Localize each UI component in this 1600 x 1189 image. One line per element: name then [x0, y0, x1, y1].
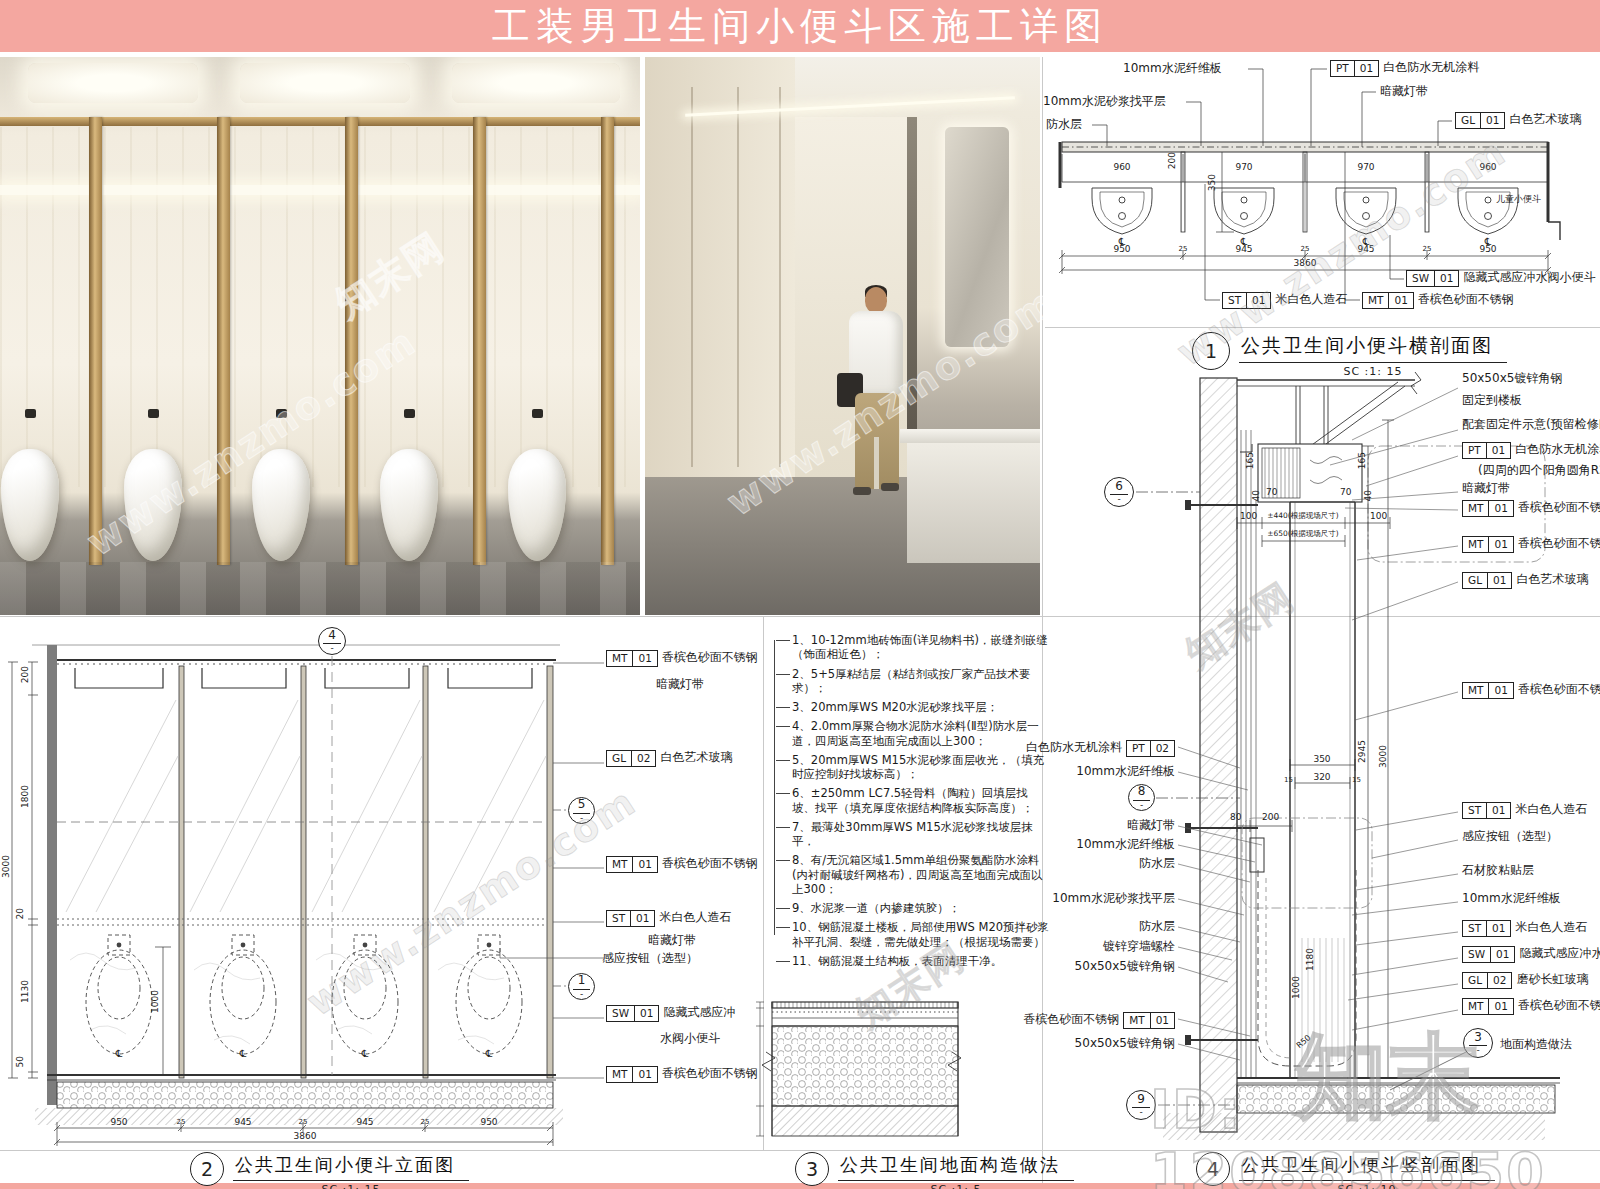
material-tag: MT01	[606, 650, 658, 667]
sect-tag-pt02: 白色防水无机涂料 PT02	[1026, 740, 1175, 757]
caption-bubble: 4	[1196, 1152, 1230, 1186]
sect-tag-mt01: 香槟色砂面不锈钢 MT01	[1023, 1012, 1175, 1029]
plan-label-led: 暗藏灯带	[1380, 85, 1428, 99]
caption-bubble: 3	[795, 1152, 829, 1186]
plan-tag-mt01: MT01 香槟色砂面不锈钢	[1362, 292, 1514, 309]
dim: 1000	[151, 990, 160, 1013]
material-tag: MT01	[606, 856, 658, 873]
gold-frame-post	[89, 117, 102, 565]
elev-tag-mt01: MT01 香槟色砂面不锈钢	[606, 650, 758, 667]
sect-rlabel: 感应按钮（选型）	[1462, 830, 1558, 844]
backlit-mirror	[945, 127, 1009, 347]
material-tag: MT01	[606, 1066, 658, 1083]
dim-total: 3860	[1294, 259, 1317, 268]
urinal	[508, 449, 566, 561]
centerline-symbol: ℄	[1485, 236, 1491, 247]
sect-label: 镀锌穿墙螺栓	[1103, 940, 1175, 954]
dim: 350	[1313, 755, 1330, 764]
dim: 1180	[1306, 948, 1315, 971]
centerline-symbol: ℄	[362, 1048, 368, 1059]
detail-bubble-1: 1-	[568, 973, 595, 1000]
elev-tag-st01: ST01 米白色人造石	[606, 910, 731, 927]
material-tag: ST01	[1222, 292, 1271, 309]
plan-label-cement-board: 10mm水泥纤维板	[1123, 62, 1222, 76]
flush-sensor	[532, 409, 543, 418]
sect-rtag: MT01 香槟色砂面不锈钢	[1462, 998, 1600, 1015]
sheet-title-banner: 工装男卫生间小便斗区施工详图	[0, 0, 1600, 52]
person-shoe	[881, 483, 899, 491]
drawing-sheet: 工装男卫生间小便斗区施工详图	[0, 0, 1600, 1189]
material-tag: GL02	[1462, 972, 1512, 989]
dim: 945	[1235, 245, 1252, 254]
note-item: 7、最薄处30mm厚WS M15水泥砂浆找坡层抹平，	[792, 820, 1050, 849]
dim: 200	[1168, 152, 1177, 169]
dim: 950	[1479, 245, 1496, 254]
material-tag: MT01	[1462, 998, 1514, 1015]
detail-bubble-5: 5-	[568, 797, 595, 824]
material-tag: GL02	[606, 750, 656, 767]
centerline-symbol: ℄	[116, 1048, 122, 1059]
gold-frame-post	[345, 117, 358, 565]
note-item: 10、钢筋混凝土楼板，局部使用WS M20预拌砂浆补平孔洞、裂缝，需先做处理；（…	[792, 920, 1050, 949]
note-item: 8、有/无沉箱区域1.5mm单组份聚氨酯防水涂料(内衬耐碱玻纤网格布)，四周返高…	[792, 853, 1050, 896]
divider	[0, 616, 1600, 617]
dim: 2945	[1358, 740, 1367, 763]
ceiling-light-panel	[452, 63, 620, 103]
sect-rlabel: 配套固定件示意(预留检修口)	[1462, 418, 1600, 432]
centerline-symbol: ℄	[1241, 236, 1247, 247]
notes-bracket-line	[774, 640, 775, 935]
sect-label: 10mm水泥纤维板	[1076, 838, 1175, 852]
gold-frame-post	[473, 117, 486, 565]
detail-bubble-3: 3-	[1463, 1028, 1493, 1058]
detail-bubble-8: 8-	[1128, 784, 1155, 811]
gold-frame-post	[601, 117, 614, 565]
centerline-symbol: ℄	[240, 1048, 246, 1059]
elev-tag-sw01: SW01 隐藏式感应冲	[606, 1005, 735, 1022]
note-item: 6、±250mm LC7.5轻骨料（陶粒）回填层找坡、找平（填充厚度依据结构降板…	[792, 786, 1050, 815]
dim: ±650(根据现场尺寸)	[1267, 530, 1338, 538]
person-head	[865, 287, 887, 313]
plan-tag-sw01: SW01 隐藏式感应冲水阀小便斗	[1406, 270, 1595, 287]
centerline-symbol: ℄	[486, 1048, 492, 1059]
elev-sub-sw: 水阀小便斗	[660, 1030, 720, 1047]
sect-rtag-pt01: PT01 白色防水无机涂料	[1462, 442, 1600, 459]
dim: 25	[1179, 246, 1188, 253]
sect-rlabel: 石材胶粘贴层	[1462, 864, 1534, 878]
dim: 960	[1113, 163, 1130, 172]
sect-rtag: MT01 香槟色砂面不锈钢	[1462, 682, 1600, 699]
detail-bubble-4: 4-	[318, 627, 346, 655]
caption-plan: 1 公共卫生间小便斗横剖面图 SC :1: 15	[1192, 332, 1507, 378]
bottom-accent-strip	[0, 1183, 1600, 1189]
material-tag: MT01	[1123, 1012, 1175, 1029]
divider	[1042, 57, 1043, 1183]
sect-rtag: MT01 香槟色砂面不锈钢	[1462, 500, 1600, 517]
plan-tag-gl01: GL01 白色艺术玻璃	[1455, 112, 1581, 129]
wall-seam	[779, 87, 781, 467]
material-tag: PT02	[1126, 740, 1175, 757]
watermark-logo: 知末	[1295, 1015, 1479, 1139]
dim: 40	[1364, 490, 1373, 501]
flush-sensor	[148, 409, 159, 418]
sect-label: 暗藏灯带	[1127, 819, 1175, 833]
watermark-site: 知末网	[1176, 571, 1304, 679]
material-tag: MT01	[1462, 682, 1514, 699]
sect-rtag: GL01 白色艺术玻璃	[1462, 572, 1588, 589]
material-tag: MT01	[1462, 500, 1514, 517]
watermark-url: www.znzmo.com	[1169, 129, 1514, 374]
material-tag: GL01	[1462, 572, 1512, 589]
note-item: 11、钢筋混凝土结构板，表面清理干净。	[792, 954, 1050, 968]
dim: 25	[1423, 246, 1432, 253]
material-tag: GL01	[1455, 112, 1505, 129]
wall-seam	[737, 87, 739, 467]
dim-total: 3860	[294, 1132, 317, 1141]
dim: 80	[1230, 813, 1241, 822]
divider	[0, 1150, 1600, 1151]
sect-rtag: MT01 香槟色砂面不锈钢	[1462, 536, 1600, 553]
urinal	[124, 449, 182, 561]
note-item: 9、水泥浆一道（内掺建筑胶）；	[792, 901, 1050, 915]
dim: 1000	[1292, 976, 1301, 999]
divider	[763, 616, 764, 1150]
material-tag: PT01	[1462, 442, 1511, 459]
dim: 1130	[21, 980, 30, 1003]
elev-sub-led: 暗藏灯带	[656, 676, 704, 693]
sect-label: 防水层	[1139, 920, 1175, 934]
material-tag: SW01	[1462, 946, 1515, 963]
dim: 950	[480, 1118, 497, 1127]
sect-label: 50x50x5镀锌角钢	[1075, 960, 1175, 974]
vanity-cabinet	[907, 443, 1040, 563]
sect-label: 防水层	[1139, 857, 1175, 871]
dim: 15	[1352, 777, 1361, 784]
photo-restroom-corridor	[645, 57, 1040, 615]
gold-frame-post	[217, 117, 230, 565]
sect-rsub: 固定到楼板	[1462, 392, 1522, 409]
flush-sensor	[276, 409, 287, 418]
note-item: 3、20mm厚WS M20水泥砂浆找平层；	[792, 700, 1050, 714]
detail-bubble-6: 6-	[1104, 477, 1134, 507]
section-floor-ref: 地面构造做法	[1500, 1036, 1572, 1053]
wall-seam	[691, 87, 693, 467]
material-tag: MT01	[1362, 292, 1414, 309]
dim: 25	[177, 1119, 186, 1126]
dim: 945	[1357, 245, 1374, 254]
dim: 945	[234, 1118, 251, 1127]
left-wall	[645, 57, 795, 477]
material-tag: PT01	[1330, 60, 1379, 77]
dim: 100	[1370, 512, 1387, 521]
material-tag: MT01	[1462, 536, 1514, 553]
caption-bubble: 1	[1192, 332, 1230, 370]
sect-rtag: ST01 米白色人造石	[1462, 920, 1587, 937]
material-tag: ST01	[1462, 920, 1511, 937]
elev-tag-mt01b: MT01 香槟色砂面不锈钢	[606, 856, 758, 873]
dim: 25	[1301, 246, 1310, 253]
dim: 1800	[21, 785, 30, 808]
urinal	[252, 449, 310, 561]
dim: 40	[1252, 490, 1261, 501]
material-tag: ST01	[606, 910, 655, 927]
dim: 200	[21, 666, 30, 683]
dim: 3000	[2, 855, 11, 878]
dim: ±440(根据现场尺寸)	[1267, 512, 1338, 520]
dim: 25	[421, 1119, 430, 1126]
dim: 950	[110, 1118, 127, 1127]
centerline-symbol: ℄	[1363, 236, 1369, 247]
floor-construction-notes: 1、10-12mm地砖饰面(详见物料书)，嵌缝剂嵌缝（饰面相近色）； 2、5+5…	[792, 633, 1050, 973]
ceiling-light-panel	[240, 63, 410, 103]
plan-tag-pt01: PT01 白色防水无机涂料	[1330, 60, 1479, 77]
dim: 100	[1240, 512, 1257, 521]
plan-label-waterproof: 防水层	[1046, 118, 1082, 132]
person-leg-gap	[874, 437, 879, 489]
urinal	[1, 449, 59, 561]
sect-rtag: GL02 磨砂长虹玻璃	[1462, 972, 1588, 989]
material-tag: SW01	[606, 1005, 659, 1022]
dim: 3000	[1379, 745, 1388, 768]
dim: 70	[1266, 488, 1277, 497]
detail-bubble-9: 9-	[1126, 1090, 1156, 1120]
sect-rsub: (四周的四个阳角圆角R20)	[1478, 462, 1600, 479]
sect-label: 10mm水泥纤维板	[1076, 765, 1175, 779]
dim: 200	[1262, 813, 1279, 822]
sheet-title: 工装男卫生间小便斗区施工详图	[492, 1, 1108, 52]
dim: 970	[1235, 163, 1252, 172]
dim: 25	[299, 1119, 308, 1126]
dim: 165	[1358, 452, 1367, 469]
dim: 970	[1357, 163, 1374, 172]
walking-person	[841, 287, 911, 517]
elev-sub-led2: 暗藏灯带	[648, 932, 696, 949]
flush-sensor	[404, 409, 415, 418]
dim: 320	[1313, 773, 1330, 782]
dim: 350	[1208, 174, 1217, 191]
elev-label-sensor-button: 感应按钮（选型）	[602, 950, 698, 967]
sect-rlabel: 50x50x5镀锌角钢	[1462, 372, 1562, 386]
sect-rlabel: 暗藏灯带	[1462, 482, 1510, 496]
dim: 165	[1246, 452, 1255, 469]
sect-rtag: SW01 隐藏式感应冲水阀小便斗	[1462, 946, 1600, 963]
flush-sensor	[25, 409, 36, 418]
note-item: 4、2.0mm厚聚合物水泥防水涂料(Ⅱ型)防水层一道，四周返高至地面完成面以上3…	[792, 719, 1050, 748]
elev-tag-mt01c: MT01 香槟色砂面不锈钢	[606, 1066, 758, 1083]
sect-rtag: ST01 米白色人造石	[1462, 802, 1587, 819]
dim: 15	[1284, 777, 1293, 784]
elev-tag-gl02: GL02 白色艺术玻璃	[606, 750, 732, 767]
ceiling-light-panel	[28, 63, 198, 103]
sect-label: 10mm水泥砂浆找平层	[1052, 892, 1175, 906]
note-item: 1、10-12mm地砖饰面(详见物料书)，嵌缝剂嵌缝（饰面相近色）；	[792, 633, 1050, 662]
watermark-id: ID: 1208856650	[1150, 1078, 1600, 1189]
sect-rlabel: 10mm水泥纤维板	[1462, 892, 1561, 906]
material-tag: SW01	[1406, 270, 1459, 287]
plan-label-screed: 10mm水泥砂浆找平层	[1043, 95, 1166, 109]
dim: 50	[16, 1056, 25, 1067]
caption-bubble: 2	[190, 1152, 224, 1186]
divider	[1045, 327, 1600, 328]
centerline-symbol: ℄	[1119, 236, 1125, 247]
dim: 945	[356, 1118, 373, 1127]
dim: 960	[1479, 163, 1496, 172]
watermark-site: 知末网	[846, 931, 974, 1039]
dim: R50	[1295, 1034, 1312, 1050]
material-tag: ST01	[1462, 802, 1511, 819]
person-shoe	[853, 487, 871, 495]
vanity-countertop	[900, 429, 1040, 443]
plan-tag-st01: ST01 米白色人造石	[1222, 292, 1347, 309]
sect-label: 50x50x5镀锌角钢	[1075, 1037, 1175, 1051]
watermark-url: www.znzmo.com	[299, 779, 644, 1024]
photo-urinal-room	[0, 57, 640, 615]
urinal	[380, 449, 438, 561]
dim: 950	[1113, 245, 1130, 254]
plan-label-child-urinal: 儿童小便斗	[1496, 194, 1541, 204]
note-item: 2、5+5厚粘结层（粘结剂或按厂家产品技术要求）；	[792, 667, 1050, 696]
dim: 20	[16, 908, 25, 919]
note-item: 5、20mm厚WS M15水泥砂浆面层收光，（填充时应控制好找坡标高）；	[792, 753, 1050, 782]
dim: 70	[1340, 488, 1351, 497]
marble-floor	[0, 562, 640, 615]
